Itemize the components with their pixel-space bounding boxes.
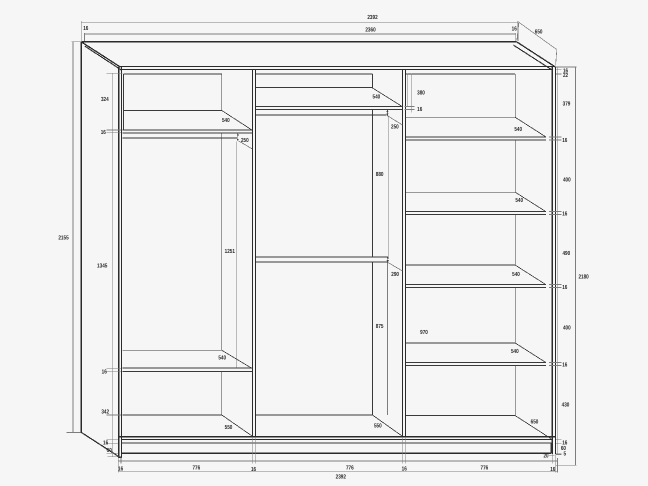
svg-text:16: 16 [417,106,423,113]
svg-text:970: 970 [420,329,428,336]
svg-text:776: 776 [192,464,200,471]
svg-text:430: 430 [562,402,570,409]
svg-text:400: 400 [563,177,571,184]
svg-text:16: 16 [103,440,109,447]
svg-text:16: 16 [118,465,124,472]
svg-text:540: 540 [222,117,230,124]
svg-text:16: 16 [251,466,257,473]
svg-text:400: 400 [563,325,571,332]
svg-text:880: 880 [376,171,384,178]
svg-text:250: 250 [391,123,399,130]
svg-text:540: 540 [218,355,226,362]
svg-text:16: 16 [83,25,89,32]
svg-text:540: 540 [512,271,520,278]
svg-text:290: 290 [391,271,399,278]
svg-text:2155: 2155 [58,235,69,242]
svg-text:380: 380 [417,89,425,96]
svg-text:650: 650 [531,419,539,426]
svg-text:342: 342 [101,409,109,416]
svg-text:540: 540 [511,348,519,355]
svg-text:379: 379 [563,101,571,108]
svg-text:540: 540 [514,126,522,133]
svg-text:324: 324 [101,96,109,103]
svg-text:20: 20 [543,453,549,460]
svg-text:16: 16 [102,369,108,376]
svg-text:16: 16 [562,137,568,144]
svg-text:16: 16 [402,465,408,472]
svg-text:2180: 2180 [578,274,589,281]
svg-text:16: 16 [512,26,518,33]
svg-text:875: 875 [376,323,384,330]
svg-text:2392: 2392 [336,473,347,480]
svg-text:776: 776 [481,465,489,472]
svg-text:776: 776 [346,464,354,471]
svg-text:16: 16 [562,211,568,218]
svg-text:16: 16 [101,129,107,136]
svg-text:1345: 1345 [97,263,108,270]
svg-text:16: 16 [562,362,568,369]
svg-text:16: 16 [550,466,556,473]
svg-text:540: 540 [515,197,523,204]
svg-text:250: 250 [241,137,249,144]
svg-text:60: 60 [107,447,113,454]
svg-text:550: 550 [374,423,382,430]
svg-text:540: 540 [373,93,381,100]
svg-text:650: 650 [535,29,543,36]
svg-text:550: 550 [225,424,233,431]
svg-text:1251: 1251 [225,248,236,255]
svg-text:2392: 2392 [367,14,378,21]
svg-text:16: 16 [562,284,568,291]
svg-text:22: 22 [563,72,569,79]
svg-text:490: 490 [562,250,570,257]
svg-text:2360: 2360 [365,26,376,33]
